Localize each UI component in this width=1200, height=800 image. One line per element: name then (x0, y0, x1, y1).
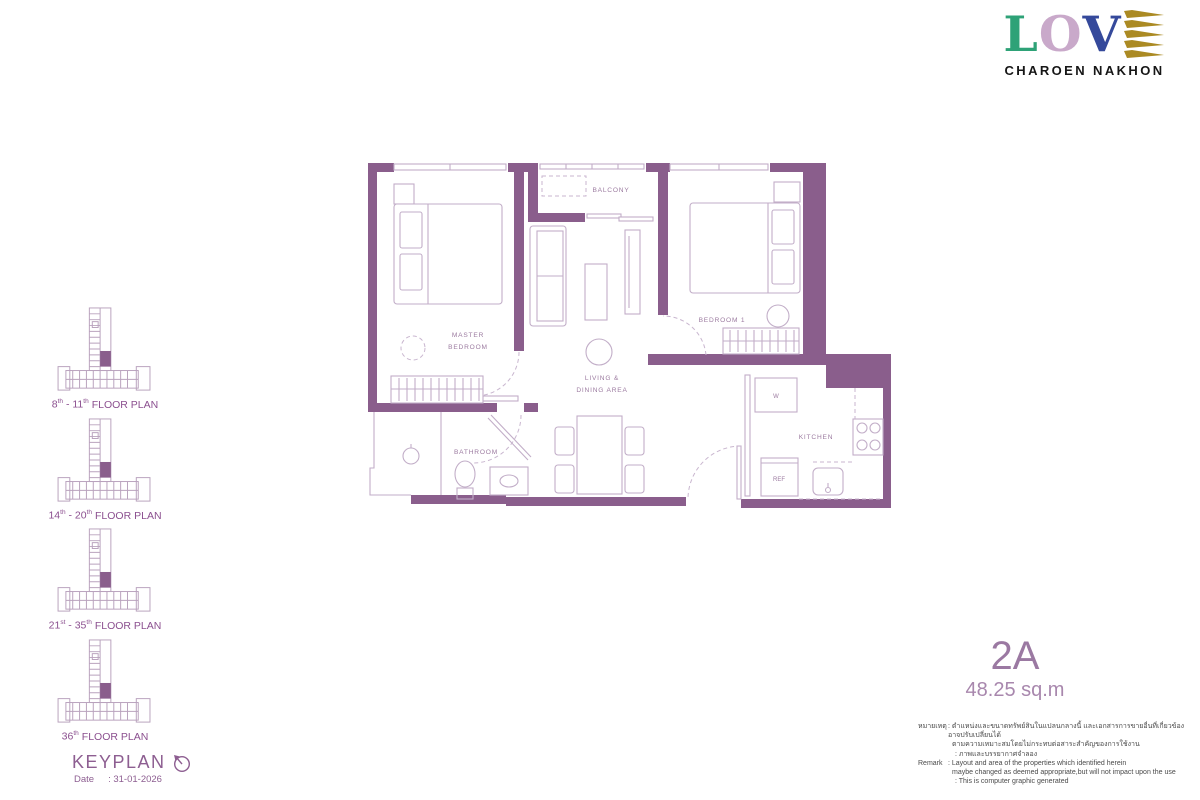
remark-en-line2: maybe changed as deemed appropriate,but … (948, 768, 1193, 777)
logo-letter-v: V (1083, 8, 1121, 60)
keyplan-label-1: 8th - 11thFLOOR PLAN (20, 398, 190, 411)
bedroom1-label: BEDROOM 1 (699, 317, 746, 324)
keyplan-header: KEYPLAN (72, 752, 192, 773)
floor-end-sup: th (86, 619, 91, 626)
unit-floor-plan: MASTER BEDROOM BALCONY BEDROOM 1 LIVING … (366, 156, 896, 516)
washer-label: W (773, 394, 779, 400)
balcony-area: BALCONY (542, 176, 630, 196)
master-bedroom-label-line2: BEDROOM (448, 344, 488, 351)
floor-start: 36 (62, 731, 74, 743)
keyplan-building-icon-1 (56, 306, 154, 394)
keyplan-building-icon-4 (56, 638, 154, 726)
remark-thai-line3: : ภาพและบรรยากาศจำลอง (948, 750, 1193, 759)
logo-letter-l: L (1003, 8, 1037, 60)
date-value: : 31-01-2026 (108, 774, 162, 785)
floorplan-page: { "logo": { "letter1": "L", "letter2": "… (0, 0, 1200, 800)
remark-block: หมายเหตุ : ตำแหน่งและขนาดทรัพย์สินในแปลน… (918, 722, 1193, 786)
keyplan-label-3: 21st - 35thFLOOR PLAN (20, 619, 190, 632)
keyplan-item-2: 14th - 20thFLOOR PLAN (20, 417, 190, 522)
remark-thai-line2: ตามความเหมาะสมโดยไม่กระทบต่อสาระสำคัญของ… (948, 740, 1193, 749)
floor-plan-svg: MASTER BEDROOM BALCONY BEDROOM 1 LIVING … (366, 156, 896, 516)
floor-end: 35 (75, 620, 87, 632)
keyplan-item-4: 36thFLOOR PLAN (20, 638, 190, 743)
floor-start-sup: th (73, 730, 78, 737)
bathroom-label: BATHROOM (454, 449, 498, 456)
keyplan-label-4: 36thFLOOR PLAN (20, 730, 190, 743)
living-dining-area: LIVING & DINING AREA (530, 226, 644, 494)
floor-dash: - (65, 620, 74, 632)
keyplan-label-2: 14th - 20thFLOOR PLAN (20, 509, 190, 522)
floor-end-sup: th (87, 509, 92, 516)
floor-end-sup: th (83, 398, 88, 405)
remark-thai-label: หมายเหตุ (918, 722, 948, 740)
floor-start: 14 (48, 510, 60, 522)
bathroom-area: BATHROOM (403, 444, 528, 499)
floor-start: 21 (49, 620, 61, 632)
floor-suffix: FLOOR PLAN (95, 620, 162, 632)
remark-en-label: Remark (918, 759, 948, 768)
date-label: Date (74, 774, 94, 785)
unit-info: 2A 48.25 sq.m (935, 634, 1095, 702)
logo-stylized-e-icon (1122, 10, 1166, 58)
remark-en-row: Remark : Layout and area of the properti… (918, 759, 1193, 768)
unit-type: 2A (935, 634, 1095, 678)
floor-dash: - (66, 510, 75, 522)
kitchen-area: W REF KITCHEN (755, 378, 883, 499)
brand-logo-letters: L O V (1002, 8, 1167, 60)
floor-end: 20 (75, 510, 87, 522)
kitchen-label: KITCHEN (799, 434, 834, 441)
remark-en-line1: : Layout and area of the properties whic… (948, 759, 1193, 768)
north-compass-icon (172, 753, 192, 773)
remark-en-line3: : This is computer graphic generated (948, 777, 1193, 786)
brand-subtitle: CHAROEN NAKHON (1002, 63, 1167, 78)
keyplan-building-icon-3 (56, 527, 154, 615)
floor-suffix: FLOOR PLAN (95, 510, 162, 522)
master-bedroom-area: MASTER BEDROOM (391, 184, 502, 403)
logo-letter-o: O (1039, 8, 1082, 60)
fridge-label: REF (773, 477, 785, 483)
keyplan-item-3: 21st - 35thFLOOR PLAN (20, 527, 190, 632)
keyplan-item-1: 8th - 11thFLOOR PLAN (20, 306, 190, 411)
keyplan-date-row: Date : 31-01-2026 (74, 774, 162, 785)
master-bedroom-label-line1: MASTER (452, 332, 484, 339)
keyplan-title: KEYPLAN (72, 752, 166, 773)
living-dining-label-line1: LIVING & (585, 375, 619, 382)
brand-logo: L O V CHAROEN NAKHON (1002, 8, 1167, 78)
unit-area: 48.25 sq.m (935, 678, 1095, 702)
balcony-label: BALCONY (592, 187, 629, 194)
floor-end: 11 (72, 399, 83, 411)
living-dining-label-line2: DINING AREA (576, 387, 627, 394)
remark-thai-line1: : ตำแหน่งและขนาดทรัพย์สินในแปลนกลางนี้ แ… (948, 722, 1193, 740)
remark-thai-row: หมายเหตุ : ตำแหน่งและขนาดทรัพย์สินในแปลน… (918, 722, 1193, 740)
bedroom1-area: BEDROOM 1 (690, 182, 800, 354)
floor-suffix: FLOOR PLAN (92, 399, 159, 411)
floor-dash: - (63, 399, 72, 411)
floor-suffix: FLOOR PLAN (82, 731, 149, 743)
keyplan-building-icon-2 (56, 417, 154, 505)
